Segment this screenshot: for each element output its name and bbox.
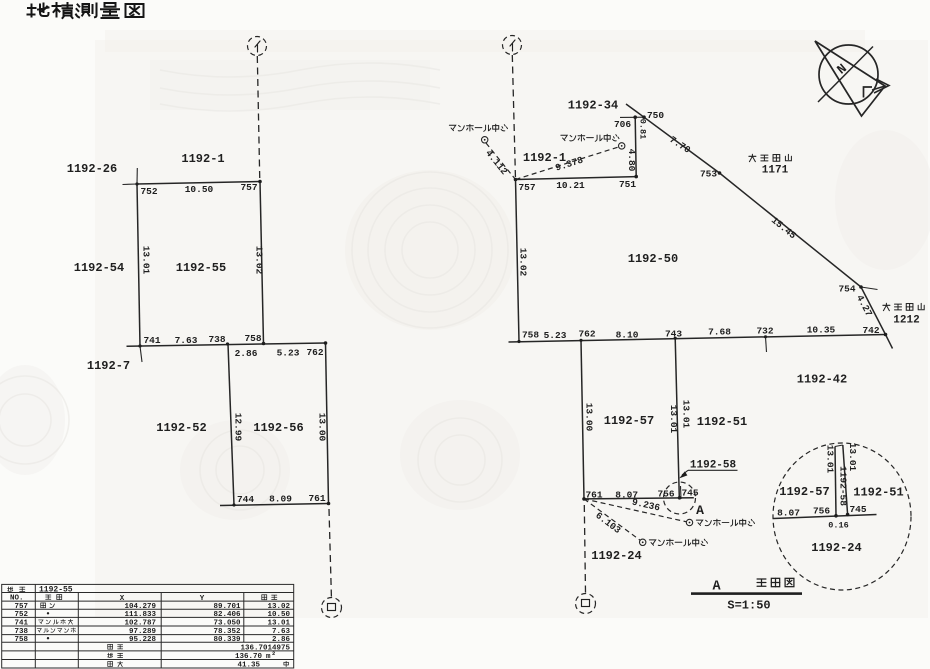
- svg-text:136.7014975: 136.7014975: [240, 645, 290, 653]
- svg-text:102.787: 102.787: [124, 619, 156, 627]
- svg-text:1192-57: 1192-57: [604, 414, 654, 428]
- svg-text:10.50: 10.50: [185, 184, 214, 195]
- svg-text:S=1:50: S=1:50: [727, 599, 770, 613]
- svg-text:1192-55: 1192-55: [176, 261, 226, 275]
- svg-text:2.86: 2.86: [272, 636, 291, 644]
- svg-text:750: 750: [647, 110, 664, 121]
- svg-text:706: 706: [614, 119, 631, 130]
- svg-text:13.02: 13.02: [517, 248, 528, 277]
- svg-text:741: 741: [143, 335, 160, 346]
- svg-text:1192-24: 1192-24: [591, 549, 641, 563]
- svg-text:5.23: 5.23: [544, 330, 567, 341]
- svg-text:Y: Y: [200, 595, 205, 603]
- svg-text:754: 754: [838, 284, 855, 295]
- svg-text:78.352: 78.352: [213, 628, 241, 636]
- svg-text:758: 758: [522, 330, 539, 341]
- svg-text:1192-7: 1192-7: [87, 359, 130, 373]
- svg-text:7.63: 7.63: [175, 335, 198, 346]
- svg-text:13.00: 13.00: [317, 413, 328, 442]
- svg-text:80.339: 80.339: [213, 636, 241, 644]
- svg-text:1192-58: 1192-58: [690, 460, 737, 472]
- svg-text:761: 761: [585, 490, 602, 501]
- svg-text:742: 742: [862, 325, 879, 336]
- svg-text:13.02: 13.02: [254, 246, 265, 275]
- svg-text:745: 745: [681, 488, 698, 499]
- svg-text:1192-1: 1192-1: [523, 151, 566, 165]
- svg-text:1192-58: 1192-58: [838, 466, 849, 506]
- svg-text:8.10: 8.10: [616, 330, 639, 341]
- svg-text:1192-51: 1192-51: [697, 415, 747, 429]
- svg-text:1192-54: 1192-54: [74, 261, 124, 275]
- svg-text:732: 732: [756, 326, 773, 337]
- svg-text:89.701: 89.701: [213, 603, 241, 611]
- svg-text:1192-51: 1192-51: [853, 486, 903, 500]
- svg-text:NO.: NO.: [10, 595, 24, 603]
- svg-text:1192-50: 1192-50: [628, 252, 678, 266]
- svg-text:111.833: 111.833: [124, 611, 156, 619]
- svg-text:13.01: 13.01: [141, 246, 152, 275]
- svg-text:751: 751: [619, 179, 636, 190]
- svg-text:10.35: 10.35: [807, 325, 836, 336]
- svg-text:753: 753: [700, 169, 717, 180]
- svg-text:2.86: 2.86: [235, 348, 258, 359]
- svg-text:13.01: 13.01: [668, 405, 679, 434]
- svg-text:1171: 1171: [762, 165, 789, 177]
- svg-text:13.01: 13.01: [825, 445, 836, 474]
- svg-text:756: 756: [657, 489, 674, 500]
- svg-text:752: 752: [14, 611, 28, 619]
- svg-text:1192-26: 1192-26: [67, 162, 117, 176]
- svg-text:761: 761: [308, 493, 325, 504]
- svg-text:104.279: 104.279: [124, 603, 156, 611]
- svg-text:752: 752: [140, 186, 157, 197]
- svg-text:1192-57: 1192-57: [779, 485, 829, 499]
- svg-text:745: 745: [849, 504, 866, 515]
- svg-text:757: 757: [518, 182, 535, 193]
- svg-text:7.68: 7.68: [708, 327, 731, 338]
- svg-text:1212: 1212: [893, 315, 919, 327]
- svg-text:13.01: 13.01: [267, 619, 290, 627]
- svg-text:82.406: 82.406: [213, 611, 241, 619]
- svg-text:10.50: 10.50: [267, 611, 290, 619]
- svg-text:757: 757: [240, 182, 257, 193]
- svg-text:738: 738: [14, 628, 28, 636]
- svg-text:13.00: 13.00: [584, 403, 595, 432]
- svg-text:762: 762: [306, 347, 323, 358]
- svg-text:10.21: 10.21: [556, 180, 585, 191]
- svg-text:758: 758: [14, 636, 28, 644]
- svg-text:1192-34: 1192-34: [568, 99, 618, 113]
- svg-text:1192-1: 1192-1: [181, 152, 224, 166]
- svg-text:1192-42: 1192-42: [797, 373, 847, 387]
- svg-text:41.35: 41.35: [237, 661, 260, 669]
- svg-text:13.01: 13.01: [681, 400, 692, 429]
- svg-text:744: 744: [237, 494, 254, 505]
- svg-text:5.23: 5.23: [277, 348, 300, 359]
- svg-text:136.70: 136.70: [235, 653, 263, 661]
- svg-text:8.07: 8.07: [777, 508, 800, 519]
- svg-text:73.050: 73.050: [213, 619, 241, 627]
- svg-text:95.228: 95.228: [129, 636, 157, 644]
- svg-text:741: 741: [14, 619, 28, 627]
- svg-text:1192-56: 1192-56: [253, 421, 303, 435]
- svg-text:757: 757: [14, 603, 28, 611]
- svg-text:12.99: 12.99: [233, 413, 244, 442]
- svg-text:97.289: 97.289: [129, 628, 157, 636]
- svg-text:X: X: [120, 595, 125, 603]
- svg-text:1192-55: 1192-55: [39, 586, 73, 595]
- svg-text:1192-52: 1192-52: [156, 421, 206, 435]
- svg-text:0.81: 0.81: [638, 119, 648, 139]
- svg-text:756: 756: [813, 506, 830, 517]
- svg-text:762: 762: [578, 329, 595, 340]
- svg-text:A: A: [712, 580, 721, 595]
- svg-text:7.63: 7.63: [272, 628, 291, 636]
- svg-text:758: 758: [244, 333, 261, 344]
- svg-text:0.16: 0.16: [828, 521, 848, 531]
- svg-text:A: A: [696, 503, 704, 518]
- svg-text:738: 738: [208, 334, 225, 345]
- svg-text:2: 2: [272, 650, 275, 657]
- svg-text:m: m: [266, 653, 271, 661]
- svg-text:13.02: 13.02: [267, 603, 290, 611]
- svg-text:8.09: 8.09: [269, 494, 292, 505]
- svg-text:1192-24: 1192-24: [811, 541, 861, 555]
